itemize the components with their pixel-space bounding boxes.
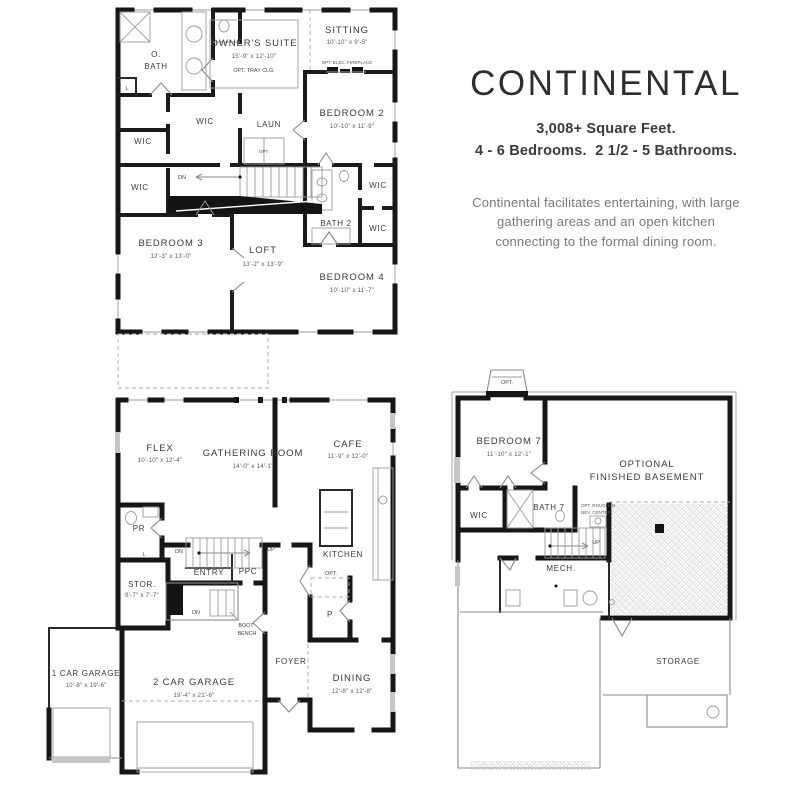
cafe-label: CAFE xyxy=(334,439,363,450)
bath2-label: BATH 2 xyxy=(320,219,352,228)
loft-dims: 13'-2" x 13'-9" xyxy=(242,261,283,268)
second-floor-plan: O. BATH L OWNER'S SUITE 15'-9" x 12'-10"… xyxy=(118,10,395,388)
dn-label: DN xyxy=(178,175,186,181)
foyer-label: FOYER xyxy=(275,657,306,666)
pantry-label: P xyxy=(327,610,333,619)
bedroom3-label: BEDROOM 3 xyxy=(138,238,203,249)
flex-label: FLEX xyxy=(146,443,173,454)
kitchen-opt-label: OPT. xyxy=(325,571,337,577)
bedroom4-label: BEDROOM 4 xyxy=(319,272,384,283)
egress-opt-label: OPT. xyxy=(501,380,513,386)
fireplace-note: OPT. ELEC. FIREPLACE xyxy=(322,60,373,65)
one-car-garage-label: 1 CAR GARAGE xyxy=(52,669,120,678)
sitting-label: SITTING xyxy=(325,25,369,36)
first-floor-labels: FLEX 10'-10" x 12'-4" GATHERING ROOM 14'… xyxy=(52,439,373,699)
up-label: UP xyxy=(267,547,275,553)
obath-label-2: BATH xyxy=(144,62,168,71)
two-car-garage-dims: 19'-4" x 21'-6" xyxy=(173,692,214,699)
second-floor-labels: O. BATH L OWNER'S SUITE 15'-9" x 12'-10"… xyxy=(126,25,387,294)
floorplan-canvas: O. BATH L OWNER'S SUITE 15'-9" x 12'-10"… xyxy=(0,0,800,788)
optional-basement-label-1: OPTIONAL xyxy=(619,459,674,470)
basement-walls xyxy=(452,370,736,770)
bedroom7-dims: 11'-10" x 12'-1" xyxy=(487,451,531,458)
boot-bench-label-2: BENCH xyxy=(238,631,257,637)
wic-label: WIC xyxy=(131,183,149,192)
basement-plan: OPT. BEDROOM 7 11'-10" x 12'-1" OPTIONAL… xyxy=(452,370,736,770)
mech-label: MECH. xyxy=(546,564,575,573)
linen-label: L xyxy=(143,552,146,558)
boot-bench-label-1: BOOT xyxy=(238,623,254,629)
loft-label: LOFT xyxy=(249,245,277,256)
wic-label: WIC xyxy=(369,181,387,190)
owners-suite-dims: 15'-9" x 12'-10" xyxy=(232,53,277,60)
gathering-room-label: GATHERING ROOM xyxy=(203,448,304,459)
dining-label: DINING xyxy=(333,673,372,684)
tray-ceiling-note: OPT. TRAY CLG. xyxy=(233,68,274,74)
first-floor-plan: FLEX 10'-10" x 12'-4" GATHERING ROOM 14'… xyxy=(49,397,395,772)
wic-label: WIC xyxy=(470,511,488,520)
one-car-garage-dims: 10'-8" x 19'-6" xyxy=(65,682,106,689)
dn-label: DN xyxy=(192,610,200,616)
bev-center-label-1: OPT. ROUGH-IN xyxy=(581,503,615,508)
entry-label: ENTRY xyxy=(194,568,224,577)
powder-room-label: PR xyxy=(133,524,146,533)
dining-dims: 12'-8" x 12'-8" xyxy=(331,688,372,695)
up-label: UP xyxy=(592,540,600,546)
dn-label: DN xyxy=(175,549,183,555)
linen-label: L xyxy=(126,86,129,92)
owners-suite-label: OWNER'S SUITE xyxy=(211,38,298,49)
obath-label-1: O. xyxy=(151,50,161,59)
flex-dims: 10'-10" x 12'-4" xyxy=(138,457,183,464)
two-car-garage-label: 2 CAR GARAGE xyxy=(153,677,235,688)
laundry-opt-label: OPT. xyxy=(259,149,269,154)
laundry-label: LAUN xyxy=(257,120,281,129)
wic-label: WIC xyxy=(134,137,152,146)
optional-basement-label-2: FINISHED BASEMENT xyxy=(590,472,705,483)
sitting-dims: 10'-10" x 9'-5" xyxy=(326,39,367,46)
bedroom3-dims: 12'-3" x 13'-0" xyxy=(150,253,191,260)
ppc-label: PPC xyxy=(239,567,258,576)
storage-label: STOR. xyxy=(128,580,156,589)
bedroom2-dims: 10'-10" x 11'-9" xyxy=(330,123,374,130)
wic-label: WIC xyxy=(196,117,214,126)
kitchen-label: KITCHEN xyxy=(323,550,363,559)
cafe-dims: 11'-9" x 12'-0" xyxy=(328,453,369,460)
bedroom7-label: BEDROOM 7 xyxy=(476,436,541,447)
bath7-label: BATH 7 xyxy=(533,503,565,512)
storage-room-label: STORAGE xyxy=(656,657,700,666)
floorplan-page: CONTINENTAL 3,008+ Square Feet. 4 - 6 Be… xyxy=(0,0,800,788)
wic-label: WIC xyxy=(369,224,387,233)
storage-dims: 8'-7" x 7'-7" xyxy=(125,592,159,599)
gathering-room-dims: 14'-0" x 14'-1" xyxy=(232,463,273,470)
bedroom4-dims: 10'-10" x 11'-7" xyxy=(330,287,374,294)
bedroom2-label: BEDROOM 2 xyxy=(319,108,384,119)
basement-fixtures xyxy=(466,462,615,606)
bev-center-label-2: BEV. CENTER xyxy=(581,510,611,515)
